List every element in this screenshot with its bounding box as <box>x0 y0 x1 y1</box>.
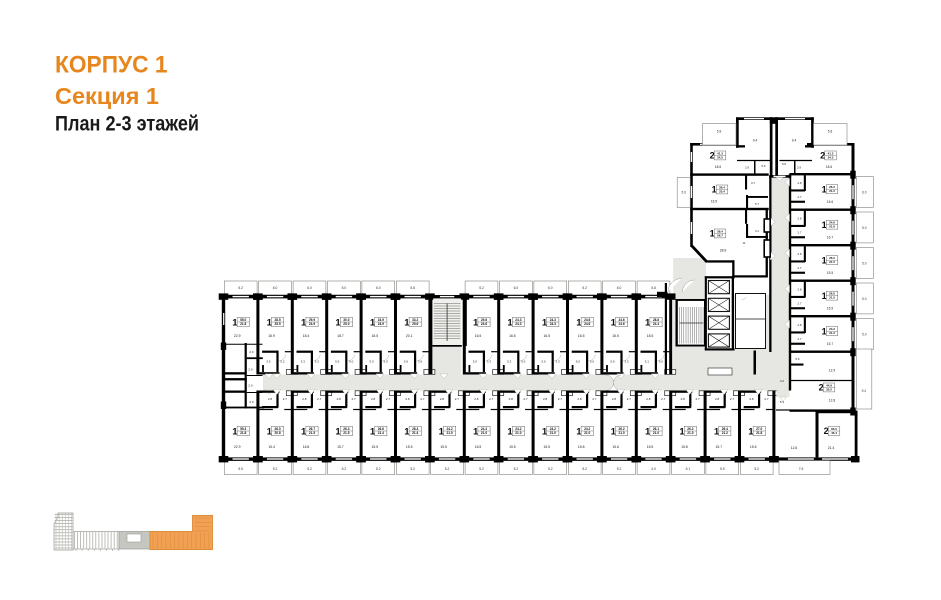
svg-text:КОРПУС 1: КОРПУС 1 <box>55 51 168 78</box>
svg-text:15.5: 15.5 <box>647 445 654 449</box>
svg-text:21.2: 21.2 <box>722 431 728 435</box>
svg-text:2.9: 2.9 <box>249 350 254 354</box>
svg-text:2.8: 2.8 <box>371 397 376 401</box>
svg-text:2.7: 2.7 <box>627 397 632 401</box>
svg-text:25.4: 25.4 <box>719 190 725 194</box>
svg-text:24.6: 24.6 <box>481 322 487 326</box>
svg-text:21.0: 21.0 <box>446 431 452 435</box>
svg-text:6.0: 6.0 <box>273 286 278 290</box>
svg-text:5.2: 5.2 <box>342 467 347 471</box>
svg-text:5.2: 5.2 <box>445 467 450 471</box>
svg-text:5.2: 5.2 <box>410 467 415 471</box>
svg-text:4.0: 4.0 <box>651 467 656 471</box>
svg-text:4.0: 4.0 <box>780 379 785 383</box>
svg-text:5.2: 5.2 <box>479 286 484 290</box>
svg-text:15.8: 15.8 <box>578 445 585 449</box>
svg-text:2.0: 2.0 <box>248 367 253 371</box>
svg-text:2.8: 2.8 <box>715 397 720 401</box>
svg-text:2.8: 2.8 <box>797 252 801 256</box>
svg-text:15.5: 15.5 <box>509 445 516 449</box>
svg-text:6.0: 6.0 <box>617 286 622 290</box>
svg-text:45.4: 45.4 <box>831 431 837 435</box>
svg-text:2.7: 2.7 <box>797 302 801 306</box>
svg-text:6.0: 6.0 <box>307 286 312 290</box>
svg-text:21.8: 21.8 <box>240 322 246 326</box>
svg-text:2.8: 2.8 <box>474 397 479 401</box>
svg-text:7.6: 7.6 <box>799 467 804 471</box>
svg-text:2.8: 2.8 <box>797 217 801 221</box>
svg-text:5.0: 5.0 <box>370 360 375 364</box>
svg-text:5.2: 5.2 <box>273 467 278 471</box>
svg-text:18.6: 18.6 <box>715 165 721 169</box>
svg-text:21.6: 21.6 <box>829 225 835 229</box>
svg-text:2.9: 2.9 <box>797 166 801 170</box>
svg-text:12.8: 12.8 <box>829 399 835 403</box>
svg-text:1: 1 <box>822 291 827 301</box>
svg-text:35.5: 35.5 <box>826 388 832 392</box>
svg-text:21.8: 21.8 <box>756 431 762 435</box>
svg-text:2.7: 2.7 <box>592 397 597 401</box>
svg-text:2.8: 2.8 <box>509 397 514 401</box>
svg-text:16.7: 16.7 <box>827 236 833 240</box>
svg-text:12.6: 12.6 <box>791 446 798 450</box>
svg-text:2.8: 2.8 <box>681 397 686 401</box>
svg-text:2.8: 2.8 <box>797 288 801 292</box>
svg-text:2.7: 2.7 <box>764 397 769 401</box>
svg-text:21.0: 21.0 <box>584 431 590 435</box>
svg-text:2.9: 2.9 <box>249 400 254 404</box>
svg-text:5.8: 5.8 <box>717 129 722 133</box>
svg-text:1: 1 <box>710 229 715 239</box>
svg-text:5.6: 5.6 <box>404 360 409 364</box>
svg-text:5.2: 5.2 <box>514 467 519 471</box>
svg-text:5.2: 5.2 <box>376 467 381 471</box>
svg-text:5.2: 5.2 <box>238 286 243 290</box>
svg-text:2.7: 2.7 <box>386 397 391 401</box>
svg-text:34.5: 34.5 <box>717 156 723 160</box>
svg-text:5.0: 5.0 <box>576 360 581 364</box>
svg-text:5.0: 5.0 <box>862 297 867 301</box>
svg-text:5.6: 5.6 <box>761 164 765 168</box>
svg-text:2.9: 2.9 <box>745 166 749 170</box>
svg-text:20.1: 20.1 <box>406 334 413 338</box>
svg-text:20.8: 20.8 <box>274 431 280 435</box>
svg-text:15.5: 15.5 <box>543 445 550 449</box>
svg-text:5.3: 5.3 <box>301 360 306 364</box>
svg-text:6.0: 6.0 <box>862 191 867 195</box>
svg-text:1: 1 <box>822 326 827 336</box>
svg-text:1: 1 <box>822 220 827 230</box>
svg-text:18.5: 18.5 <box>647 334 654 338</box>
svg-text:2.7: 2.7 <box>661 397 666 401</box>
svg-text:15.5: 15.5 <box>406 445 413 449</box>
svg-text:5.3: 5.3 <box>507 360 512 364</box>
svg-text:5.2: 5.2 <box>548 467 553 471</box>
svg-text:2.8: 2.8 <box>797 323 801 327</box>
svg-text:16.5: 16.5 <box>612 334 619 338</box>
svg-text:План 2-3 этажей: План 2-3 этажей <box>55 112 199 136</box>
svg-text:5.0: 5.0 <box>473 360 478 364</box>
svg-text:21.4: 21.4 <box>828 446 835 450</box>
svg-text:15.8: 15.8 <box>681 445 688 449</box>
svg-text:5.5: 5.5 <box>238 467 243 471</box>
svg-text:21.2: 21.2 <box>829 189 835 193</box>
svg-text:15.6: 15.6 <box>612 445 619 449</box>
svg-text:5.8: 5.8 <box>651 286 656 290</box>
svg-text:21.0: 21.0 <box>829 296 835 300</box>
svg-text:21.4: 21.4 <box>378 431 384 435</box>
svg-text:2.8: 2.8 <box>646 397 651 401</box>
svg-text:5.7: 5.7 <box>755 202 759 206</box>
svg-text:6.0: 6.0 <box>514 286 519 290</box>
svg-text:9.4: 9.4 <box>862 389 867 393</box>
svg-text:21.0: 21.0 <box>829 260 835 264</box>
svg-text:22.9: 22.9 <box>234 334 241 338</box>
svg-text:16.8: 16.8 <box>303 445 310 449</box>
svg-text:2.7: 2.7 <box>524 397 529 401</box>
svg-text:21.2: 21.2 <box>829 331 835 335</box>
svg-text:2.8: 2.8 <box>749 397 754 401</box>
svg-text:5.5: 5.5 <box>720 467 725 471</box>
svg-text:5.2: 5.2 <box>617 467 622 471</box>
svg-text:16.5: 16.5 <box>543 334 550 338</box>
svg-text:2: 2 <box>819 383 824 393</box>
svg-text:5.5: 5.5 <box>542 360 547 364</box>
svg-text:16.5: 16.5 <box>509 334 516 338</box>
svg-text:1: 1 <box>822 184 827 194</box>
svg-text:1: 1 <box>822 255 827 265</box>
svg-text:16.5: 16.5 <box>578 334 585 338</box>
svg-text:2.8: 2.8 <box>337 397 342 401</box>
svg-text:18.4: 18.4 <box>303 334 310 338</box>
svg-text:21.8: 21.8 <box>240 431 246 435</box>
svg-text:22.9: 22.9 <box>234 445 241 449</box>
svg-text:15.5: 15.5 <box>440 445 447 449</box>
svg-text:9.4: 9.4 <box>792 139 797 143</box>
svg-text:2.8: 2.8 <box>577 397 582 401</box>
svg-text:18.6: 18.6 <box>826 165 832 169</box>
svg-text:5.0: 5.0 <box>681 191 686 195</box>
svg-text:15.7: 15.7 <box>827 342 833 346</box>
svg-text:3.7: 3.7 <box>751 181 755 185</box>
svg-text:21.0: 21.0 <box>653 431 659 435</box>
svg-text:28.9: 28.9 <box>720 249 727 253</box>
svg-text:15.4: 15.4 <box>268 445 275 449</box>
svg-text:2: 2 <box>820 151 825 161</box>
svg-text:6.0: 6.0 <box>548 286 553 290</box>
svg-text:2.8: 2.8 <box>405 397 410 401</box>
svg-text:2.7: 2.7 <box>317 397 322 401</box>
svg-text:16.5: 16.5 <box>711 200 717 204</box>
svg-text:5.0: 5.0 <box>862 226 867 230</box>
svg-text:Секция 1: Секция 1 <box>55 83 159 109</box>
svg-text:21.0: 21.0 <box>550 431 556 435</box>
svg-text:21.0: 21.0 <box>618 431 624 435</box>
svg-text:2.7: 2.7 <box>283 397 288 401</box>
svg-text:5.2: 5.2 <box>479 467 484 471</box>
svg-text:2.8: 2.8 <box>440 397 445 401</box>
svg-text:34.5: 34.5 <box>828 156 834 160</box>
svg-text:18.5: 18.5 <box>371 334 378 338</box>
svg-text:5.8: 5.8 <box>410 286 415 290</box>
svg-text:5.5: 5.5 <box>335 360 340 364</box>
svg-text:15.6: 15.6 <box>750 445 757 449</box>
svg-text:24.3: 24.3 <box>550 322 556 326</box>
svg-text:5.2: 5.2 <box>307 467 312 471</box>
svg-text:12.9: 12.9 <box>829 369 835 373</box>
svg-text:6.0: 6.0 <box>376 286 381 290</box>
svg-text:2: 2 <box>824 426 829 436</box>
svg-text:24.9: 24.9 <box>378 322 384 326</box>
svg-text:3.5: 3.5 <box>266 360 271 364</box>
svg-text:21.4: 21.4 <box>412 431 418 435</box>
svg-text:2.7: 2.7 <box>797 266 801 270</box>
svg-text:2.0: 2.0 <box>248 383 253 387</box>
svg-text:15.7: 15.7 <box>715 445 722 449</box>
svg-text:2.7: 2.7 <box>797 195 801 199</box>
svg-text:15.5: 15.5 <box>827 271 833 275</box>
svg-text:25.0: 25.0 <box>343 322 349 326</box>
svg-text:15.6: 15.6 <box>827 200 833 204</box>
svg-text:2.8: 2.8 <box>543 397 548 401</box>
svg-text:3.1: 3.1 <box>755 229 759 233</box>
svg-text:16.5: 16.5 <box>475 445 482 449</box>
svg-text:5.8: 5.8 <box>828 129 833 133</box>
svg-text:2.8: 2.8 <box>268 397 273 401</box>
svg-text:5.0: 5.0 <box>862 333 867 337</box>
svg-text:16.9: 16.9 <box>268 334 275 338</box>
svg-text:5.1: 5.1 <box>686 467 691 471</box>
svg-text:5.6: 5.6 <box>795 357 799 361</box>
svg-text:15.5: 15.5 <box>371 445 378 449</box>
svg-text:25.6: 25.6 <box>412 322 418 326</box>
svg-text:5.6: 5.6 <box>610 360 615 364</box>
svg-text:24.3: 24.3 <box>515 322 521 326</box>
svg-text:2.7: 2.7 <box>730 397 735 401</box>
svg-text:24.4: 24.4 <box>653 322 659 326</box>
svg-text:2.7: 2.7 <box>797 337 801 341</box>
svg-text:2.7: 2.7 <box>352 397 357 401</box>
svg-text:2.7: 2.7 <box>696 397 701 401</box>
svg-text:5.6: 5.6 <box>782 162 786 166</box>
svg-text:24.9: 24.9 <box>309 322 315 326</box>
svg-text:25.5: 25.5 <box>274 322 280 326</box>
svg-text:2.7: 2.7 <box>489 397 494 401</box>
svg-text:2.8: 2.8 <box>797 181 801 185</box>
svg-text:24.6: 24.6 <box>584 322 590 326</box>
svg-text:15.5: 15.5 <box>827 307 833 311</box>
svg-text:5.2: 5.2 <box>582 286 587 290</box>
svg-text:9.4: 9.4 <box>753 139 758 143</box>
svg-text:5.0: 5.0 <box>342 286 347 290</box>
svg-text:5.1: 5.1 <box>645 360 650 364</box>
svg-text:2.8: 2.8 <box>302 397 307 401</box>
svg-text:11: 11 <box>743 241 746 245</box>
svg-text:2.7: 2.7 <box>558 397 563 401</box>
svg-text:2.7: 2.7 <box>420 397 425 401</box>
svg-text:5.0: 5.0 <box>862 262 867 266</box>
svg-text:15.7: 15.7 <box>337 445 344 449</box>
svg-text:2.8: 2.8 <box>612 397 617 401</box>
svg-text:21.5: 21.5 <box>309 431 315 435</box>
svg-text:5.2: 5.2 <box>582 467 587 471</box>
svg-text:2.7: 2.7 <box>455 397 460 401</box>
svg-text:21.5: 21.5 <box>343 431 349 435</box>
svg-text:5.2: 5.2 <box>754 467 759 471</box>
svg-text:21.0: 21.0 <box>515 431 521 435</box>
svg-text:1: 1 <box>712 185 717 195</box>
svg-text:24.6: 24.6 <box>618 322 624 326</box>
svg-text:2.7: 2.7 <box>797 231 801 235</box>
svg-text:21.0: 21.0 <box>687 431 693 435</box>
svg-text:21.0: 21.0 <box>481 431 487 435</box>
svg-text:2: 2 <box>710 151 715 161</box>
svg-text:16.5: 16.5 <box>475 334 482 338</box>
svg-text:18.7: 18.7 <box>337 334 344 338</box>
svg-text:56.7: 56.7 <box>717 234 723 238</box>
